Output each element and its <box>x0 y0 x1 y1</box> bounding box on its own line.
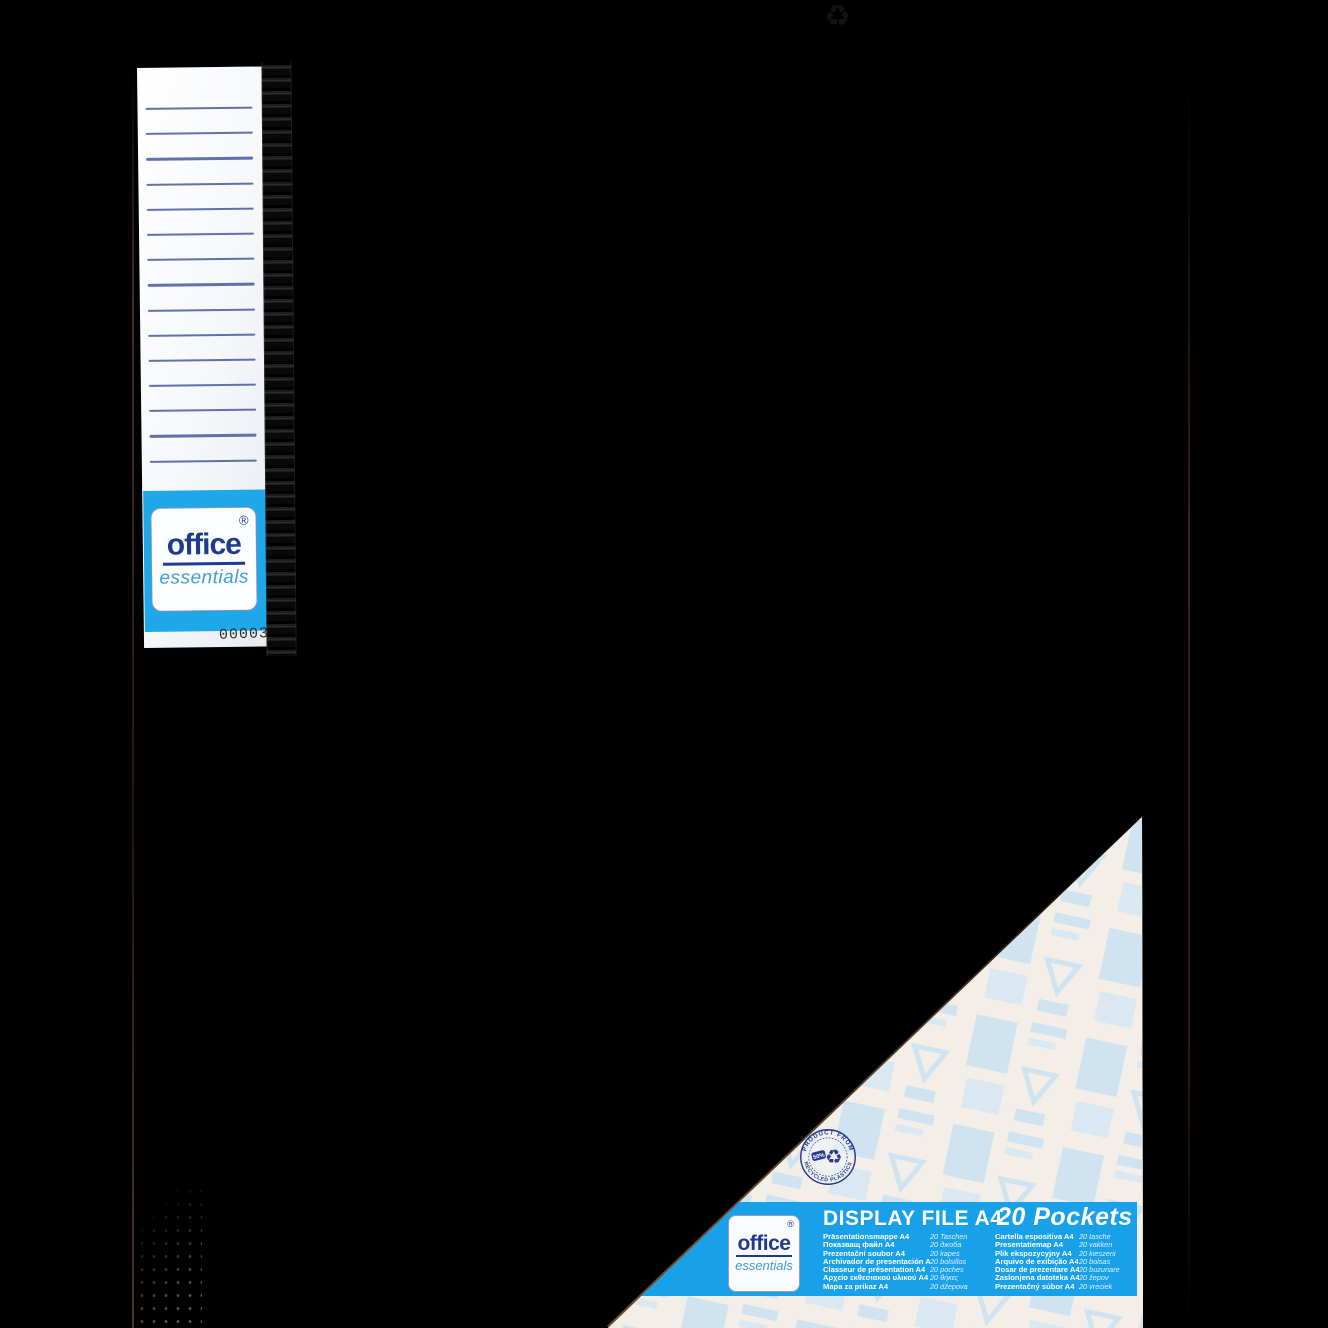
ruled-line <box>146 182 253 185</box>
translation-row: Cartella espositiva A4 20 tasche <box>995 1233 1133 1241</box>
translation-value: 20 bolsas <box>1079 1258 1133 1266</box>
ruled-line <box>147 233 254 236</box>
logo-divider <box>163 562 245 566</box>
spine-brand-logo: ® office essentials <box>143 489 268 631</box>
weld-dot-texture <box>136 1185 202 1328</box>
translation-label: Archivador de presentación A4 <box>823 1258 930 1266</box>
translation-value: 20 džepova <box>930 1283 991 1291</box>
translation-label: Prezentační soubor A4 <box>823 1250 930 1258</box>
label-ruled-lines <box>137 66 267 462</box>
translation-row: Präsentationsmappe A4 20 Taschen <box>823 1233 991 1241</box>
ruled-line <box>150 459 257 462</box>
spine-label: ® office essentials <box>137 66 269 647</box>
comb-binding-strip <box>261 62 296 656</box>
translation-row: Dosar de prezentare A4 20 buzunare <box>995 1266 1133 1274</box>
translation-row: Prezentační soubor A4 20 kapes <box>823 1250 991 1258</box>
translation-row: Αρχείο εκθεσιακού υλικού A4 20 θήκες <box>823 1274 991 1282</box>
ruled-line <box>147 207 254 210</box>
translation-row: Archivador de presentación A4 20 bolsill… <box>823 1258 991 1266</box>
logo-divider <box>736 1255 792 1257</box>
recycled-badge: PRODUCT FROM RECYCLED PLASTICS ♻ 50% <box>799 1128 857 1186</box>
translation-row: Zaslonjena datoteka A4 20 žepov <box>995 1274 1133 1282</box>
office-wordmark: office <box>729 1233 799 1254</box>
ruled-line <box>148 283 255 286</box>
essentials-wordmark: essentials <box>152 567 256 590</box>
translation-value: 20 tasche <box>1079 1233 1133 1241</box>
translation-label: Αρχείο εκθεσιακού υλικού A4 <box>823 1274 930 1282</box>
translation-label: Mapa za prikaz A4 <box>823 1283 930 1291</box>
translation-label: Präsentationsmappe A4 <box>823 1233 930 1241</box>
ruled-line <box>148 333 255 336</box>
banner-brand-logo: ® office essentials <box>728 1215 800 1292</box>
translation-label: Dosar de prezentare A4 <box>995 1266 1079 1274</box>
translation-value: 20 bolsillos <box>930 1258 991 1266</box>
translations-left: Präsentationsmappe A4 20 Taschen Показва… <box>823 1233 991 1291</box>
ruled-line <box>146 157 253 160</box>
office-wordmark: office <box>152 530 256 561</box>
brand-logo-card: ® office essentials <box>150 507 257 612</box>
product-title: DISPLAY FILE A4 <box>823 1207 1002 1231</box>
ruled-line <box>146 132 253 135</box>
translation-label: Plik ekspozycyjny A4 <box>995 1250 1079 1258</box>
translation-row: Presentatiemap A4 20 vakken <box>995 1241 1133 1249</box>
registered-mark: ® <box>787 1219 794 1229</box>
translation-row: Prezentačný súbor A4 20 vreciek <box>995 1283 1133 1291</box>
ruled-line <box>145 107 252 110</box>
embossed-code: 00003 <box>219 625 270 644</box>
translation-value: 20 žepov <box>1079 1274 1133 1282</box>
ruled-line <box>148 308 255 311</box>
translation-row: Показващ файл А4 20 джоба <box>823 1241 991 1249</box>
translation-label: Classeur de présentation A4 <box>823 1266 930 1274</box>
translation-label: Показващ файл А4 <box>823 1241 930 1249</box>
translation-value: 20 Taschen <box>930 1233 991 1241</box>
translation-label: Zaslonjena datoteka A4 <box>995 1274 1079 1282</box>
translation-value: 20 kieszeni <box>1079 1250 1133 1258</box>
folder-left-edge <box>132 55 134 1328</box>
translations-right: Cartella espositiva A4 20 tasche Present… <box>995 1233 1133 1291</box>
translation-value: 20 buzunare <box>1079 1266 1133 1274</box>
translation-value: 20 θήκες <box>930 1274 991 1282</box>
ruled-line <box>147 258 254 261</box>
ruled-line <box>149 434 256 437</box>
product-photo-black-display-folder: ♻ ® office essentials <box>0 0 1328 1328</box>
folder-right-edge <box>1188 0 1190 1328</box>
embossed-recycle-icon: ♻ <box>824 2 851 32</box>
registered-mark: ® <box>239 513 249 528</box>
translation-label: Arquivo de exibição A4 <box>995 1258 1079 1266</box>
translation-label: Cartella espositiva A4 <box>995 1233 1079 1241</box>
ruled-line <box>149 384 256 387</box>
translation-value: 20 kapes <box>930 1250 991 1258</box>
translation-row: Arquivo de exibição A4 20 bolsas <box>995 1258 1133 1266</box>
translation-value: 20 poches <box>930 1266 991 1274</box>
product-banner: ® office essentials DISPLAY FILE A4 20 P… <box>560 1202 1137 1296</box>
translation-row: Classeur de présentation A4 20 poches <box>823 1266 991 1274</box>
pockets-count: 20 Pockets <box>997 1203 1133 1232</box>
essentials-wordmark: essentials <box>729 1258 799 1273</box>
translation-value: 20 vakken <box>1079 1241 1133 1249</box>
translation-value: 20 vreciek <box>1079 1283 1133 1291</box>
translation-label: Presentatiemap A4 <box>995 1241 1079 1249</box>
translation-value: 20 джоба <box>930 1241 991 1249</box>
translation-row: Mapa za prikaz A4 20 džepova <box>823 1283 991 1291</box>
badge-recycle-icon: ♻ <box>825 1146 843 1168</box>
translation-row: Plik ekspozycyjny A4 20 kieszeni <box>995 1250 1133 1258</box>
ruled-line <box>149 358 256 361</box>
ruled-line <box>149 409 256 412</box>
translation-label: Prezentačný súbor A4 <box>995 1283 1079 1291</box>
